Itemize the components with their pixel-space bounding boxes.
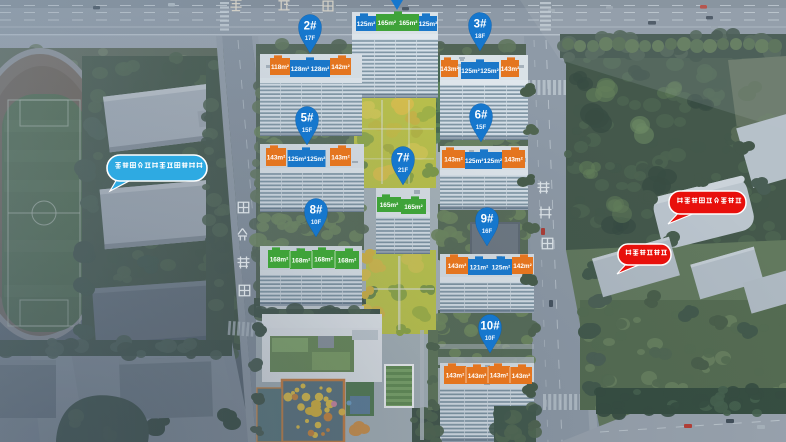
svg-text:143m²: 143m² (468, 373, 486, 380)
svg-text:10F: 10F (485, 336, 496, 342)
svg-text:2#: 2# (304, 21, 317, 33)
svg-text:143m²: 143m² (444, 156, 462, 163)
svg-text:168m²: 168m² (338, 257, 356, 264)
svg-text:165m²: 165m² (404, 204, 422, 211)
svg-text:168m²: 168m² (314, 256, 332, 263)
svg-text:125m²: 125m² (465, 158, 483, 165)
svg-text:125m²: 125m² (307, 156, 325, 163)
svg-text:125m²: 125m² (484, 158, 502, 165)
svg-text:143m²: 143m² (504, 156, 522, 163)
svg-text:143m²: 143m² (331, 154, 349, 161)
svg-text:5#: 5# (301, 113, 314, 125)
svg-text:125m²: 125m² (419, 21, 437, 28)
svg-text:142m²: 142m² (331, 64, 349, 71)
svg-text:10#: 10# (480, 321, 500, 333)
svg-text:168m²: 168m² (270, 256, 288, 263)
svg-text:143m²: 143m² (448, 263, 466, 270)
svg-text:125m²: 125m² (461, 68, 479, 75)
svg-text:143m²: 143m² (267, 154, 285, 161)
svg-text:165m²: 165m² (378, 20, 396, 27)
svg-text:128m²: 128m² (311, 66, 329, 73)
svg-text:125m²: 125m² (480, 68, 498, 75)
svg-text:125m²: 125m² (288, 156, 306, 163)
svg-text:125m²: 125m² (357, 21, 375, 28)
svg-text:143m²: 143m² (512, 373, 530, 380)
svg-text:143m²: 143m² (446, 372, 464, 379)
svg-text:143m²: 143m² (501, 66, 519, 73)
svg-text:165m²: 165m² (399, 20, 417, 27)
svg-text:7#: 7# (397, 153, 410, 165)
svg-text:17F: 17F (305, 36, 316, 42)
svg-text:15F: 15F (302, 128, 313, 134)
svg-text:165m²: 165m² (380, 202, 398, 209)
svg-text:10F: 10F (311, 220, 322, 226)
svg-text:121m²: 121m² (470, 264, 488, 271)
svg-text:125m²: 125m² (492, 264, 510, 271)
svg-text:128m²: 128m² (291, 66, 309, 73)
svg-text:9#: 9# (481, 214, 494, 226)
svg-text:142m²: 142m² (513, 263, 531, 270)
svg-text:168m²: 168m² (292, 257, 310, 264)
svg-text:18F: 18F (475, 34, 486, 40)
svg-text:118m²: 118m² (271, 64, 289, 71)
svg-text:143m²: 143m² (440, 66, 458, 73)
svg-text:6#: 6# (475, 110, 488, 122)
svg-text:21F: 21F (398, 168, 409, 174)
svg-text:15F: 15F (476, 125, 487, 131)
svg-text:143m²: 143m² (490, 372, 508, 379)
svg-text:16F: 16F (482, 229, 493, 235)
svg-text:8#: 8# (310, 205, 323, 217)
svg-text:3#: 3# (474, 19, 487, 31)
